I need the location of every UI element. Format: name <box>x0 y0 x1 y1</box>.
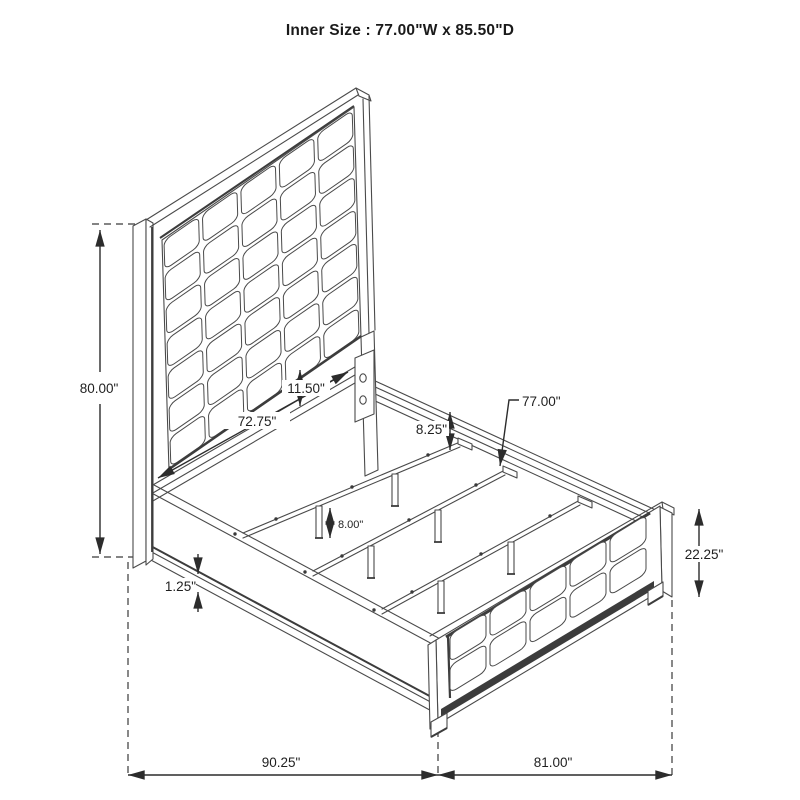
headboard-bracket <box>355 350 374 422</box>
dim-headboard-width: 72.75" <box>238 414 277 429</box>
dim-base-trim: 1.25" <box>165 579 196 594</box>
dim-overall-depth: 90.25" <box>262 755 301 770</box>
dim-rail-drop: 8.25" <box>416 422 447 437</box>
headboard-left-post <box>133 219 146 568</box>
dim-headboard-height: 80.00" <box>80 381 119 396</box>
dim-leg-height: 8.00" <box>338 519 363 531</box>
dim-panel-gap: 11.50" <box>287 381 325 396</box>
footboard-left-end <box>428 640 438 729</box>
dim-footboard-height: 22.25" <box>685 547 724 562</box>
dim-slat-length: 77.00" <box>522 394 561 409</box>
far-side-rail <box>360 374 660 532</box>
product-dimension-page: Inner Size : 77.00"W x 85.50"D <box>0 0 800 800</box>
bed-dimension-diagram: 80.00" 72.75" 11.50" 8.25" 77.00" 8.00" <box>0 0 800 800</box>
headboard <box>133 88 378 568</box>
footboard <box>428 502 674 737</box>
dim-overall-width: 81.00" <box>534 755 573 770</box>
